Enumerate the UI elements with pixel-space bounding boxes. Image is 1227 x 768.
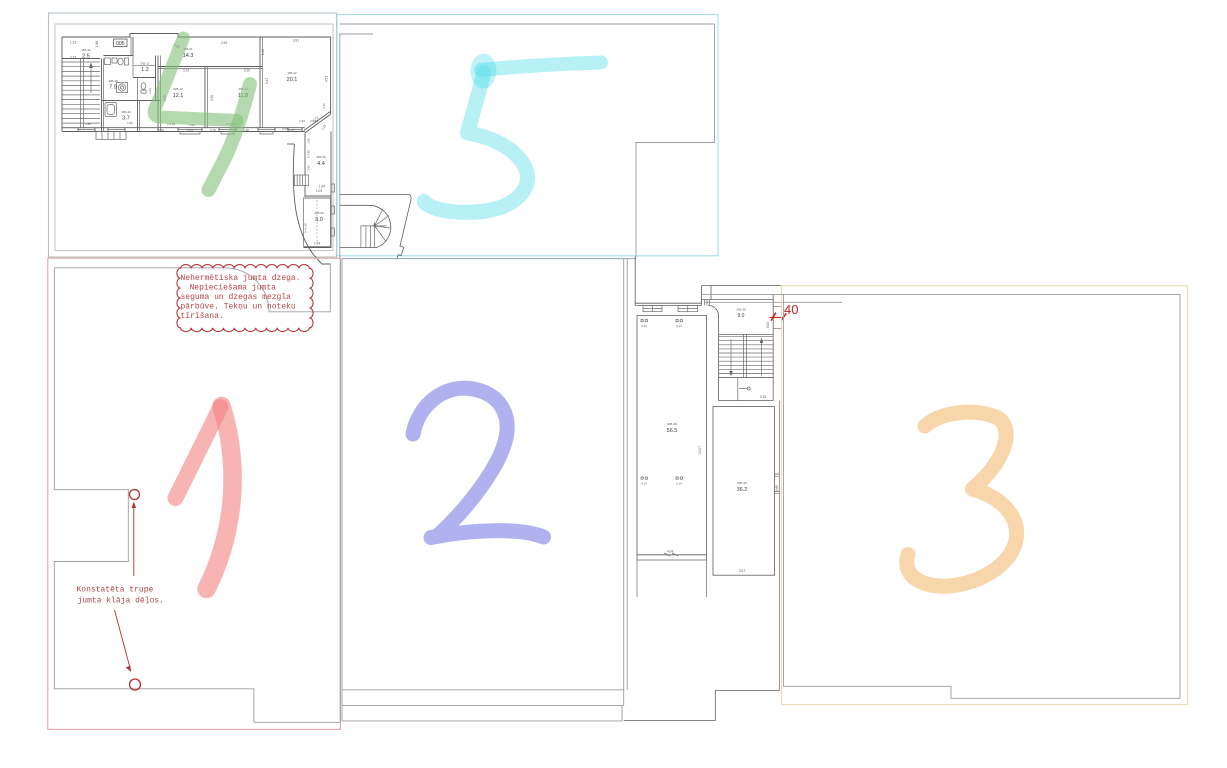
svg-text:005: 005 <box>116 41 125 47</box>
svg-text:1.93: 1.93 <box>299 119 305 123</box>
svg-text:305-29: 305-29 <box>316 155 326 159</box>
svg-text:305-22: 305-22 <box>287 71 297 75</box>
svg-text:3.20: 3.20 <box>244 69 250 73</box>
svg-text:tīrīšana.: tīrīšana. <box>181 312 224 321</box>
svg-text:2.05: 2.05 <box>282 127 288 131</box>
svg-text:1.23: 1.23 <box>320 124 327 131</box>
svg-text:9.42: 9.42 <box>265 78 269 84</box>
svg-text:305-26: 305-26 <box>314 211 324 215</box>
svg-text:1.51: 1.51 <box>187 128 193 132</box>
svg-text:14.3: 14.3 <box>183 53 194 59</box>
svg-text:4.4: 4.4 <box>317 161 325 167</box>
svg-text:1.73: 1.73 <box>312 116 320 123</box>
svg-text:1.04: 1.04 <box>316 189 322 193</box>
svg-text:0.14: 0.14 <box>641 482 647 486</box>
svg-text:305-41: 305-41 <box>81 48 91 52</box>
svg-text:0.14: 0.14 <box>641 324 647 328</box>
svg-text:56.5: 56.5 <box>667 428 678 434</box>
svg-text:1.80: 1.80 <box>85 122 91 126</box>
svg-text:9.89: 9.89 <box>775 485 779 491</box>
svg-text:305-17: 305-17 <box>140 62 150 66</box>
svg-text:3.93: 3.93 <box>148 88 152 94</box>
svg-text:7.9: 7.9 <box>109 85 117 91</box>
svg-text:3.67: 3.67 <box>739 569 745 573</box>
svg-text:305-39: 305-39 <box>736 308 746 312</box>
svg-text:4.11: 4.11 <box>322 103 326 109</box>
svg-text:1.54: 1.54 <box>319 185 325 189</box>
svg-text:1.86: 1.86 <box>95 41 99 47</box>
svg-text:jumta klāja dēļos.: jumta klāja dēļos. <box>78 597 164 606</box>
svg-text:0.14: 0.14 <box>676 482 682 486</box>
svg-text:h=1.60: h=1.60 <box>304 223 308 233</box>
svg-text:9.0: 9.0 <box>738 313 745 319</box>
svg-text:3.91: 3.91 <box>293 39 299 43</box>
svg-text:pārbūve. Tekņu un noteku: pārbūve. Tekņu un noteku <box>181 303 296 312</box>
svg-text:3.0: 3.0 <box>315 217 323 223</box>
svg-text:1.90: 1.90 <box>307 165 311 171</box>
svg-text:0.75: 0.75 <box>210 128 216 132</box>
svg-text:14.07: 14.07 <box>698 446 702 454</box>
svg-text:t=1.88: t=1.88 <box>307 150 311 158</box>
svg-text:305-18: 305-18 <box>108 79 118 83</box>
svg-text:4.51: 4.51 <box>325 76 329 82</box>
svg-text:36.2: 36.2 <box>737 487 748 493</box>
svg-text:0.14: 0.14 <box>676 324 682 328</box>
svg-text:2.5: 2.5 <box>82 54 90 60</box>
svg-text:1.88: 1.88 <box>307 138 311 144</box>
svg-text:2.95: 2.95 <box>221 41 227 45</box>
svg-text:905-36: 905-36 <box>737 481 747 485</box>
svg-text:12.1: 12.1 <box>173 93 184 99</box>
svg-text:1.27: 1.27 <box>289 128 295 132</box>
svg-text:1.04: 1.04 <box>314 242 320 246</box>
svg-text:Nepieciešama jumta: Nepieciešama jumta <box>190 284 277 293</box>
svg-text:1.40: 1.40 <box>158 128 164 132</box>
svg-text:1.23: 1.23 <box>70 41 76 45</box>
svg-text:3 15: 3 15 <box>760 395 767 399</box>
svg-text:2.23: 2.23 <box>70 56 76 60</box>
svg-text:305-13: 305-13 <box>173 87 183 91</box>
svg-text:1.2: 1.2 <box>141 67 149 73</box>
svg-text:20.1: 20.1 <box>287 77 298 83</box>
svg-text:5.62: 5.62 <box>766 322 770 328</box>
svg-text:Nehermētiska jumta dzega.: Nehermētiska jumta dzega. <box>181 274 301 283</box>
svg-text:seguma un dzegas mezgla: seguma un dzegas mezgla <box>181 293 292 302</box>
svg-text:1.60: 1.60 <box>127 121 133 125</box>
svg-text:905-38: 905-38 <box>667 422 677 426</box>
svg-text:3.90: 3.90 <box>210 95 214 101</box>
svg-text:3.14: 3.14 <box>183 69 189 73</box>
svg-text:Konstatēta trupe: Konstatēta trupe <box>77 586 154 595</box>
svg-text:305-16: 305-16 <box>121 110 131 114</box>
